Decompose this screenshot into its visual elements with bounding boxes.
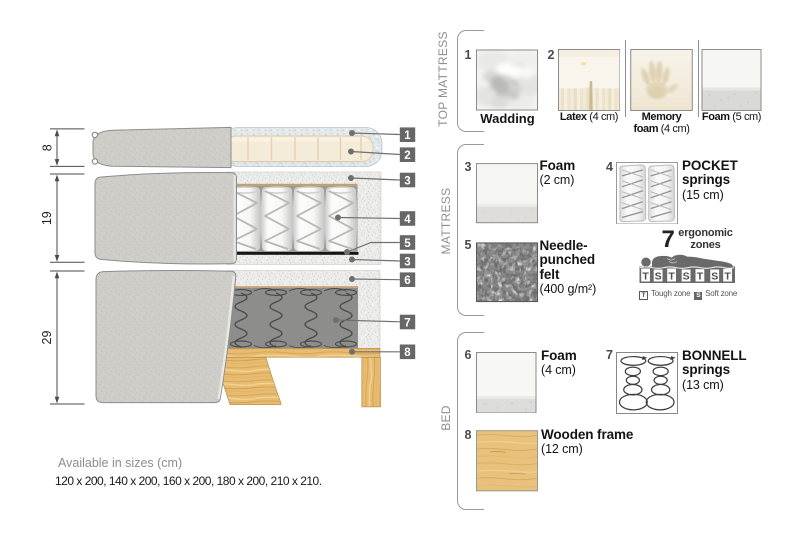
svg-text:8: 8 bbox=[41, 144, 55, 151]
svg-text:T: T bbox=[668, 271, 675, 283]
svg-text:3: 3 bbox=[404, 256, 410, 268]
svg-text:19: 19 bbox=[40, 211, 54, 225]
svg-text:S: S bbox=[711, 271, 718, 283]
svg-text:7: 7 bbox=[404, 317, 410, 329]
svg-text:2: 2 bbox=[404, 150, 410, 162]
svg-text:29: 29 bbox=[40, 331, 54, 345]
svg-text:T: T bbox=[642, 271, 649, 283]
svg-text:S: S bbox=[655, 271, 662, 283]
svg-text:6: 6 bbox=[404, 275, 410, 287]
svg-text:1: 1 bbox=[404, 130, 411, 142]
svg-text:8: 8 bbox=[404, 347, 411, 359]
svg-text:S: S bbox=[683, 271, 690, 283]
svg-text:T: T bbox=[697, 271, 704, 283]
svg-text:4: 4 bbox=[404, 214, 411, 226]
svg-text:3: 3 bbox=[404, 175, 410, 187]
svg-text:T: T bbox=[724, 271, 731, 283]
svg-text:5: 5 bbox=[404, 238, 411, 250]
